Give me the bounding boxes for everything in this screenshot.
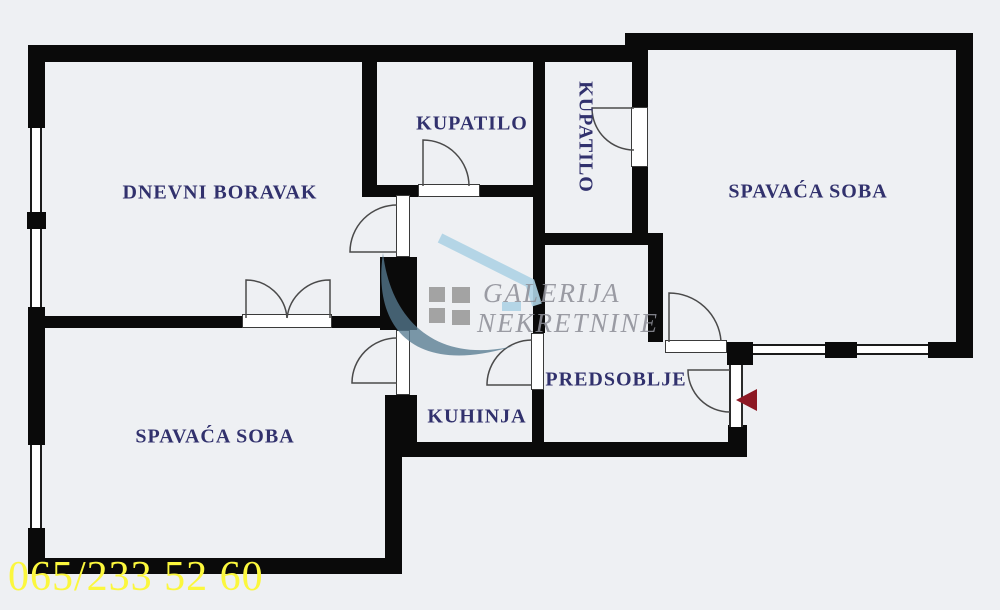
entrance-arrow-icon — [736, 389, 757, 411]
door-arc-bedroom-kitchen — [352, 338, 397, 383]
room-label-kitchen: KUHINJA — [427, 406, 526, 429]
door-arc-double-left — [246, 280, 287, 318]
logo-window-squares — [429, 287, 470, 325]
floorplan-canvas: DNEVNI BORAVAK KUPATILO KUPATILO SPAVAĆA… — [0, 0, 1000, 610]
watermark-brand-line1: GALERIJA — [483, 278, 620, 309]
room-label-bathroom-2: KUPATILO — [574, 81, 597, 193]
door-arc-bathroom2 — [592, 108, 634, 150]
room-label-hallway: PREDSOBLJE — [545, 369, 686, 392]
door-arc-living-kitchen — [350, 205, 397, 252]
door-arc-entrance — [688, 370, 730, 412]
agency-phone-number: 065/233 52 60 — [8, 556, 264, 598]
door-arc-bedroom-right — [669, 293, 721, 342]
room-label-living-room: DNEVNI BORAVAK — [123, 182, 318, 205]
room-label-bathroom-1: KUPATILO — [416, 113, 528, 136]
room-label-bedroom-right: SPAVAĆA SOBA — [728, 181, 887, 204]
door-arc-double-right — [287, 280, 330, 318]
room-label-bedroom-left: SPAVAĆA SOBA — [135, 426, 294, 449]
watermark-brand-line2: NEKRETNINE — [477, 308, 659, 339]
door-arc-bathroom1 — [423, 140, 469, 186]
door-arc-kitchen-hall — [487, 340, 532, 385]
